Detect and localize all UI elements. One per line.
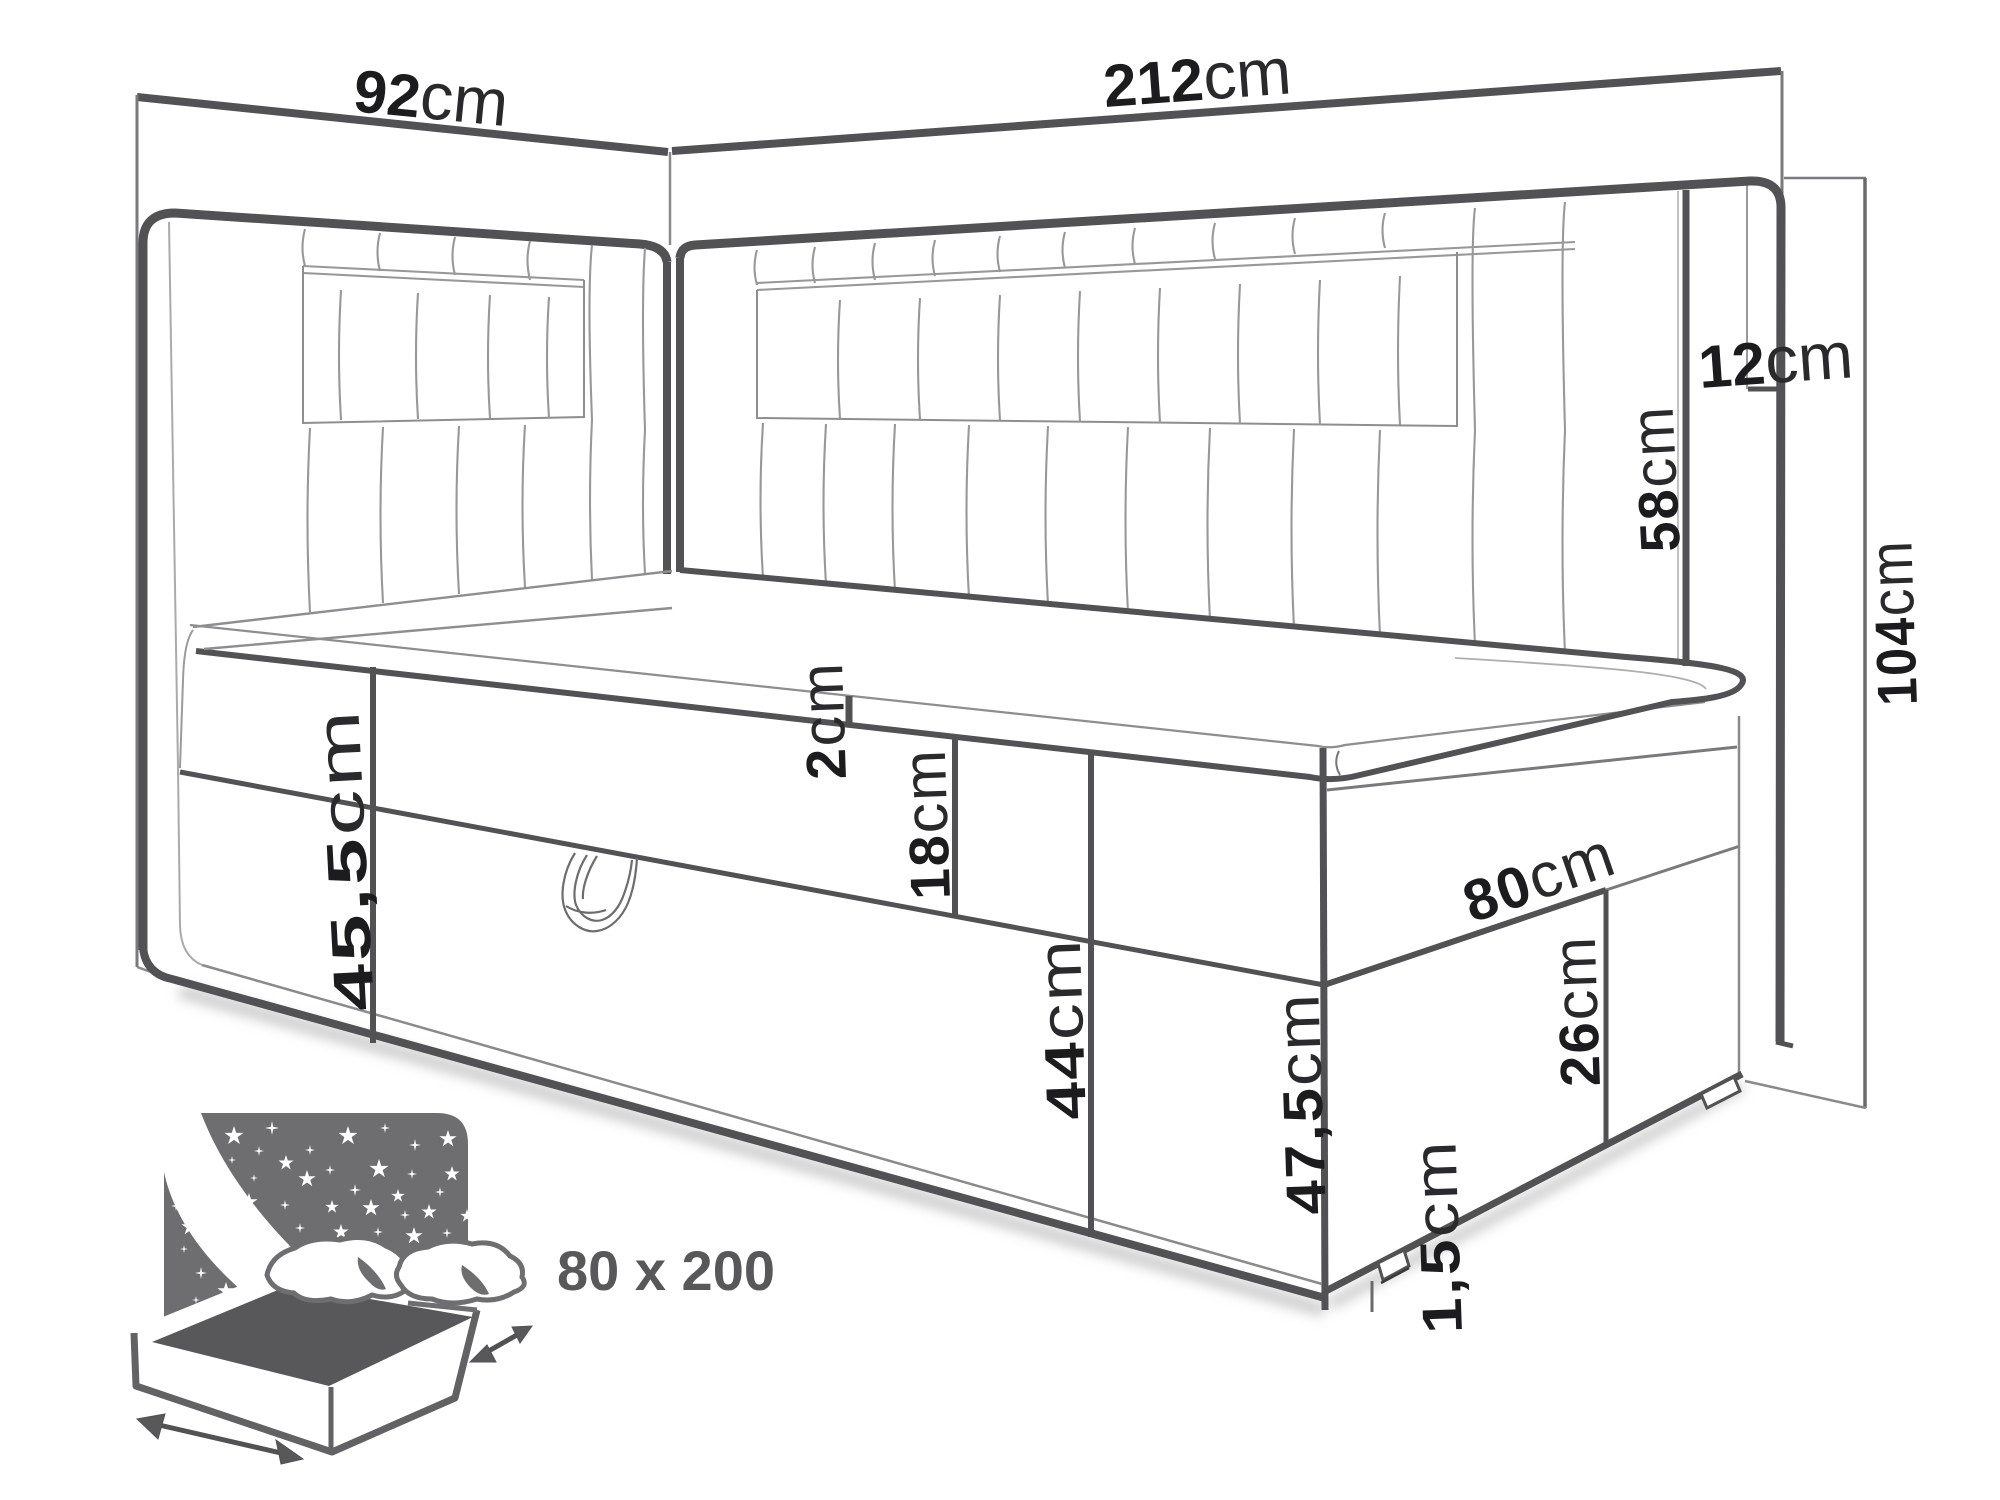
svg-text:80 x 200: 80 x 200 [557, 1239, 775, 1302]
svg-text:58cm: 58cm [1618, 403, 1694, 553]
svg-text:26cm: 26cm [1540, 934, 1613, 1088]
svg-text:47,5cm: 47,5cm [1263, 991, 1339, 1216]
svg-text:18cm: 18cm [890, 747, 963, 901]
svg-text:104cm: 104cm [1857, 538, 1931, 707]
svg-text:2cm: 2cm [787, 660, 859, 781]
svg-text:44cm: 44cm [1025, 937, 1099, 1121]
svg-text:1,5cm: 1,5cm [1400, 1138, 1475, 1335]
